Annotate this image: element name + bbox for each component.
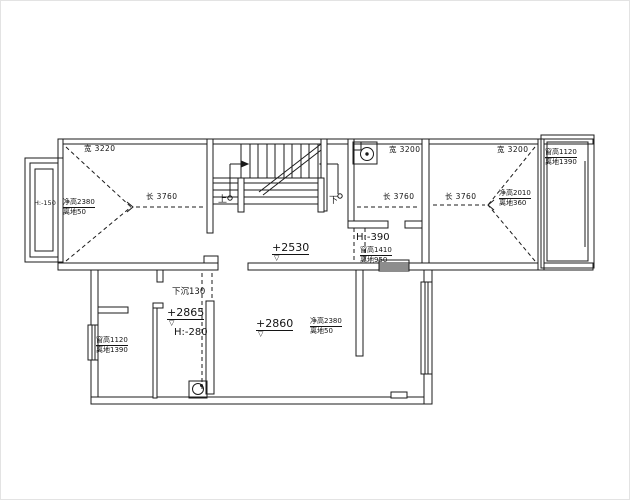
dim-label-bath-width: 宽 3200 <box>389 144 420 155</box>
dim-label-bath-depth: 长 3760 <box>383 191 414 202</box>
off-ground-label: 离地360 <box>499 199 531 208</box>
dim-label-tr-width: 宽 3200 <box>497 144 528 155</box>
stair-down-label: 下 <box>329 193 338 206</box>
level-mark-icon: ▽ <box>274 255 309 261</box>
level-annotation-left-bay: H:-150 <box>34 199 56 207</box>
dim-label-tl-width: 宽 3220 <box>84 143 115 154</box>
window-sill-label: 离地950 <box>360 256 392 265</box>
sunken-note: 下沉130 <box>172 285 205 297</box>
walls <box>58 139 593 404</box>
window-height-label: 窗高1410 <box>360 246 392 256</box>
level-annotation-hall: +2860 ▽ <box>256 318 293 337</box>
level-annotation-closet: +2865 ▽ <box>167 307 204 326</box>
floor-plan-canvas: 宽 3220 长 3760 宽 3200 长 3760 宽 3200 长 376… <box>0 0 630 500</box>
window-note-bottom-left: 窗高1120 离地1390 <box>96 336 128 354</box>
off-ground-label: 离地50 <box>310 327 342 336</box>
floor-plan-linework <box>1 1 630 500</box>
clear-height-label: 净高2010 <box>499 189 531 199</box>
clear-height-label: 净高2380 <box>310 317 342 327</box>
clear-height-label: 净高2380 <box>63 198 95 208</box>
dim-label-tl-depth: 长 3760 <box>146 191 177 202</box>
floor-drain-icon <box>189 381 207 398</box>
dim-label-tr-depth: 长 3760 <box>445 191 476 202</box>
ceiling-note-hall: 净高2380 离地50 <box>310 317 342 335</box>
window-note-right-bay: 窗高1120 离地1390 <box>545 148 577 166</box>
window-height-label: 窗高1120 <box>545 148 577 158</box>
washing-machine-icon <box>353 142 377 164</box>
height-annotation-shaft: H:-390 <box>356 232 390 243</box>
window-sill-label: 离地1390 <box>96 346 128 355</box>
level-mark-icon: ▽ <box>169 320 204 326</box>
bay-window-left <box>25 158 63 262</box>
height-annotation-closet: H:-280 <box>174 327 208 338</box>
window-height-label: 窗高1120 <box>96 336 128 346</box>
off-ground-label: 离地50 <box>63 208 95 217</box>
ceiling-note-top-left: 净高2380 离地50 <box>63 198 95 216</box>
ceiling-note-top-right: 净高2010 离地360 <box>499 189 531 207</box>
slope-apex-arrow-icons <box>127 200 494 212</box>
level-mark-icon: ▽ <box>258 331 293 337</box>
stair-up-label: 上 <box>218 192 227 205</box>
level-annotation-corridor: +2530 ▽ <box>272 242 309 261</box>
window-note-middle-wall: 窗高1410 离地950 <box>360 246 392 264</box>
window-sill-label: 离地1390 <box>545 158 577 167</box>
